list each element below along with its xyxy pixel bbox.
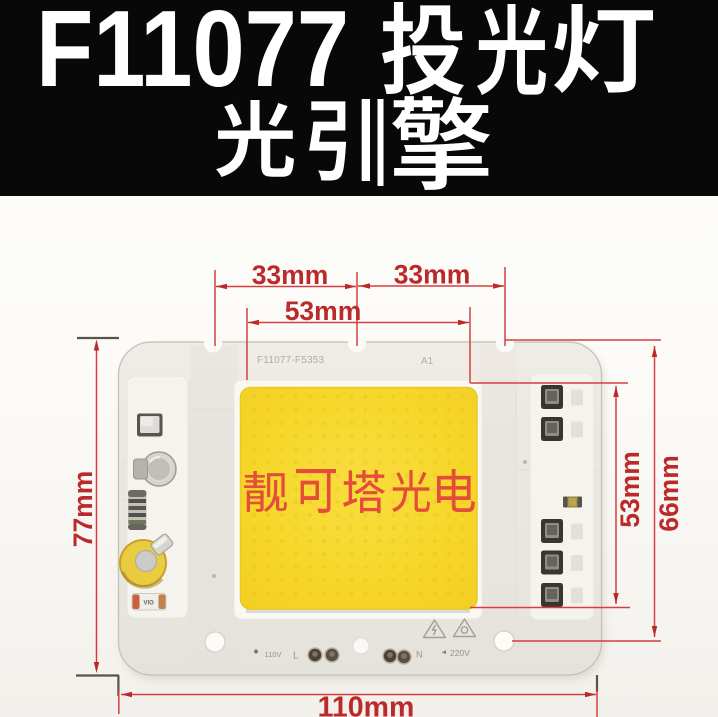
svg-text:33mm: 33mm — [394, 260, 471, 290]
svg-text:F11077: F11077 — [36, 0, 349, 110]
svg-text:53mm: 53mm — [615, 451, 645, 528]
svg-text:66mm: 66mm — [654, 455, 684, 532]
svg-text:77mm: 77mm — [68, 471, 98, 548]
svg-text:53mm: 53mm — [285, 296, 362, 326]
svg-text:110mm: 110mm — [318, 692, 415, 717]
svg-text:33mm: 33mm — [252, 260, 329, 290]
